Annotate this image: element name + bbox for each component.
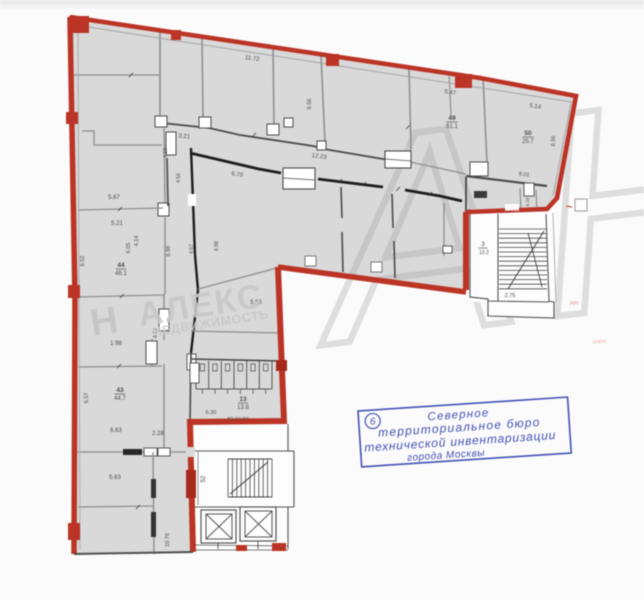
- svg-text:44: 44: [117, 262, 125, 269]
- svg-text:4.67: 4.67: [189, 244, 195, 254]
- svg-text:50: 50: [524, 130, 532, 137]
- svg-text:13.8: 13.8: [237, 405, 249, 411]
- svg-text:8.56: 8.56: [307, 99, 313, 110]
- svg-text:52: 52: [201, 475, 207, 482]
- svg-text:51.1: 51.1: [446, 124, 458, 130]
- svg-text:4.10: 4.10: [525, 197, 530, 206]
- svg-text:13: 13: [239, 396, 247, 403]
- svg-text:6.30: 6.30: [206, 410, 217, 416]
- svg-text:43: 43: [116, 387, 124, 394]
- svg-text:5.67: 5.67: [108, 195, 120, 201]
- svg-text:6.63: 6.63: [110, 428, 122, 434]
- svg-text:2.75: 2.75: [505, 293, 516, 299]
- svg-text:ВО.ОО.ОО: ВО.ОО.ОО: [227, 416, 249, 421]
- svg-text:6.57: 6.57: [84, 393, 90, 404]
- svg-text:4.14: 4.14: [134, 236, 140, 247]
- svg-text:6.98: 6.98: [166, 246, 172, 257]
- svg-text:49: 49: [448, 115, 456, 122]
- svg-text:3.21: 3.21: [178, 133, 191, 140]
- svg-text:8.56: 8.56: [551, 136, 557, 147]
- svg-text:5.21: 5.21: [111, 221, 123, 227]
- svg-text:46.1: 46.1: [115, 271, 127, 277]
- svg-text:10.76: 10.76: [165, 533, 171, 547]
- svg-text:АН: АН: [570, 301, 578, 307]
- svg-text:4.10: 4.10: [163, 148, 169, 158]
- svg-text:13.2: 13.2: [479, 250, 489, 256]
- svg-text:5.63: 5.63: [109, 475, 121, 481]
- svg-text:4.56: 4.56: [176, 173, 182, 183]
- svg-text:6.52: 6.52: [80, 256, 86, 267]
- svg-text:6.98: 6.98: [214, 241, 220, 251]
- svg-text:6.05: 6.05: [126, 243, 132, 254]
- svg-text:44.7: 44.7: [114, 396, 126, 402]
- svg-text:2.28: 2.28: [152, 431, 164, 437]
- svg-text:25.7: 25.7: [522, 139, 534, 145]
